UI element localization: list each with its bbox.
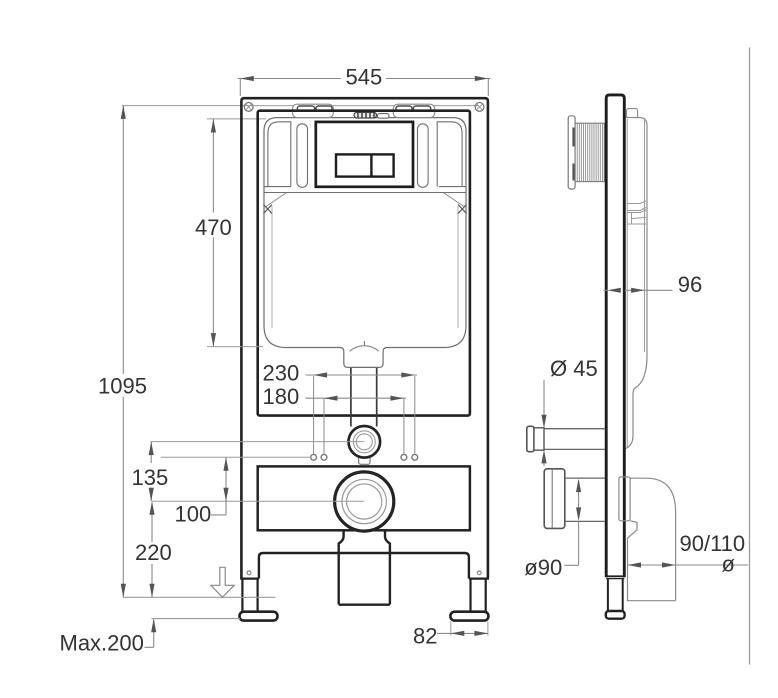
- svg-text:ø90: ø90: [524, 555, 562, 580]
- svg-text:180: 180: [263, 384, 300, 409]
- svg-text:82: 82: [413, 623, 437, 648]
- svg-text:545: 545: [346, 65, 383, 90]
- svg-text:96: 96: [678, 272, 702, 297]
- svg-text:1095: 1095: [98, 374, 147, 399]
- svg-text:90/110: 90/110: [680, 531, 746, 556]
- svg-text:Max.200: Max.200: [60, 630, 144, 655]
- svg-text:Ø 45: Ø 45: [550, 356, 598, 381]
- svg-text:ø: ø: [722, 552, 735, 577]
- svg-text:220: 220: [135, 540, 172, 565]
- svg-text:100: 100: [175, 502, 212, 527]
- svg-text:135: 135: [132, 465, 169, 490]
- svg-text:470: 470: [195, 215, 232, 240]
- svg-text:230: 230: [263, 361, 300, 386]
